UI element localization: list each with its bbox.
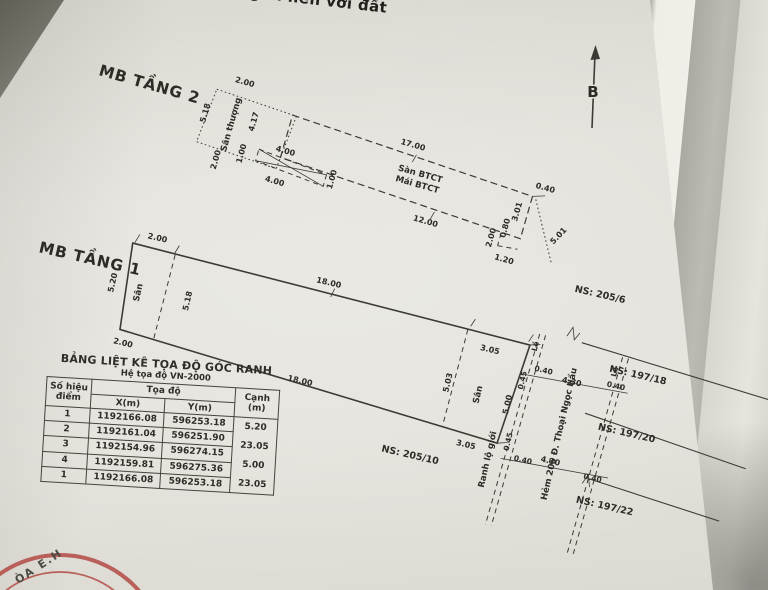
dim-back-top: 3.05 <box>479 343 501 356</box>
dim-parcel-left: 5.20 <box>106 272 119 294</box>
neighbor-label-197-20: NS: 197/20 <box>597 422 657 446</box>
road-boundary-label: Ranh lộ giới <box>476 430 500 488</box>
front-yard-label: Sân <box>132 283 146 303</box>
dim-front-inner: 5.18 <box>181 290 194 312</box>
north-arrow-head <box>591 45 601 60</box>
dim-front-bottom: 2.00 <box>112 336 134 349</box>
dim-terrace-bl: 2.00 <box>209 149 223 171</box>
dim-back-bottom: 3.05 <box>455 438 477 451</box>
dim-front-top: 2.00 <box>147 231 169 244</box>
plan-drawing: MB TẦNG 2 2.00 5.18 Sân thượng 4.17 <box>0 0 768 590</box>
sidewalk-label-near: Lề <box>530 340 541 352</box>
dim-stair-bottom: 4.00 <box>264 174 286 188</box>
point-cell: 1 <box>41 466 87 484</box>
dim-floor2-bottom: 12.00 <box>412 214 439 230</box>
dim-terrace-left: 5.18 <box>198 102 212 124</box>
dim-curb-3: 0.40 <box>513 453 533 466</box>
edge-value: 5.20 <box>234 422 277 435</box>
neighbor-label-205-10: NS: 205/10 <box>380 443 440 467</box>
dim-stair-height: 1.00 <box>325 168 339 190</box>
dim-terrace-h1: 1.00 <box>234 142 248 164</box>
dim-back-right: 5.00 <box>501 393 514 415</box>
dim-notch-b: 1.20 <box>493 252 515 266</box>
dim-length-top: 18.00 <box>315 275 342 290</box>
dim-right-a: 3.01 <box>510 201 524 223</box>
dim-curb-1: 0.40 <box>534 364 554 377</box>
north-label: B <box>587 83 598 101</box>
edge-value: 5.00 <box>232 459 275 472</box>
neighbor-label-205-6: NS: 205/6 <box>574 284 627 306</box>
dim-corner-a: 0.45 <box>502 432 515 452</box>
dim-terrace-top: 2.00 <box>234 75 256 89</box>
floor2-plan: MB TẦNG 2 2.00 5.18 Sân thượng 4.17 <box>79 38 585 278</box>
dim-right-offset: 0.40 <box>535 181 557 195</box>
edge-cell: 5.20 23.05 5.00 23.05 <box>230 417 278 495</box>
header-edge: Cạnh (m) <box>234 388 279 420</box>
edge-value: 23.05 <box>233 440 276 453</box>
front-yard-divider <box>154 254 175 338</box>
edge-value: 23.05 <box>231 478 274 491</box>
stamp-text: ÒA E.H <box>13 546 66 586</box>
dim-floor2-top: 17.00 <box>400 137 427 153</box>
dim-notch-a: 2.00 <box>484 226 498 248</box>
dim-terrace-width: 4.17 <box>247 111 261 132</box>
dim-right-b: 0.80 <box>498 217 512 239</box>
dim-length-bottom: 18.00 <box>287 374 314 389</box>
north-arrow: B <box>587 45 600 128</box>
dim-curb-2: 0.40 <box>606 379 626 392</box>
floor2-title: MB TẦNG 2 <box>97 59 203 108</box>
coordinate-table: Số hiệu điểm Tọa độ Cạnh (m) X(m) Y(m) 1… <box>40 376 280 496</box>
scanned-plan-photo: sản khác gắn liền với đất MB TẦNG 2 <box>0 0 768 590</box>
dim-back-inner: 5.03 <box>441 372 454 393</box>
dim-right-diag: 5.01 <box>548 225 568 246</box>
red-stamp: ÒA E.H <box>0 546 165 590</box>
back-yard-label: Sân <box>472 385 486 405</box>
coordinate-table-block: BẢNG LIỆT KÊ TỌA ĐỘ GÓC RANH Hệ tọa độ V… <box>40 351 285 496</box>
header-point: Số hiệu điểm <box>45 377 92 409</box>
